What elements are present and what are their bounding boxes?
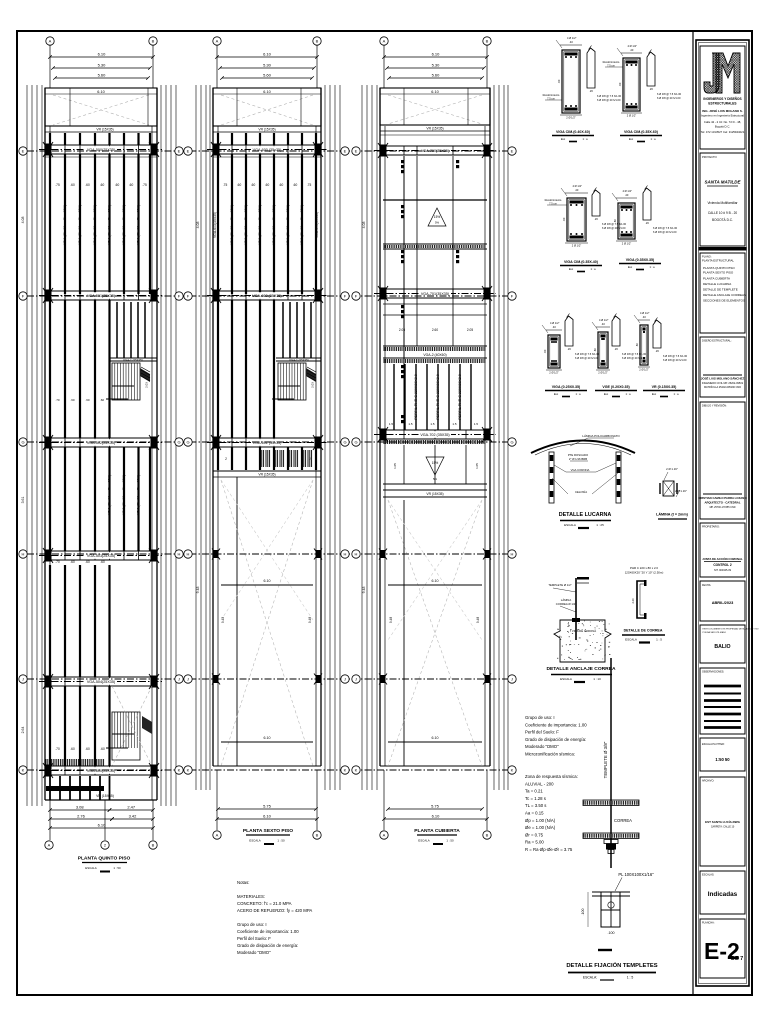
svg-text:G: G (510, 440, 513, 445)
svg-text:.75: .75 (55, 183, 60, 187)
svg-text:.60: .60 (85, 398, 90, 402)
svg-text:1 : 50: 1 : 50 (446, 839, 454, 843)
svg-text:.26: .26 (589, 89, 593, 93)
svg-text:PLANTA SEXTO PISO: PLANTA SEXTO PISO (243, 828, 293, 834)
svg-text:.40: .40 (569, 40, 573, 44)
svg-text:6.10: 6.10 (263, 90, 270, 94)
svg-text:1 : 5: 1 : 5 (656, 638, 662, 642)
svg-text:VR (15X35): VR (15X35) (426, 492, 443, 496)
svg-text:1.5: 1.5 (430, 422, 435, 426)
svg-text:SANTA MATILDE: SANTA MATILDE (705, 180, 742, 185)
svg-text:.60: .60 (237, 183, 242, 187)
svg-text:2 Ø 1.16": 2 Ø 1.16" (666, 467, 678, 471)
svg-text:.60: .60 (100, 398, 105, 402)
svg-text:Recubrimiento: Recubrimiento (543, 93, 560, 97)
svg-text:6 Ø 3/8 @ 20 h/1.00: 6 Ø 3/8 @ 20 h/1.00 (663, 358, 687, 362)
svg-text:Moderado "DMO": Moderado "DMO" (525, 744, 559, 749)
svg-text:6.10: 6.10 (263, 52, 272, 57)
svg-text:9.48: 9.48 (221, 617, 225, 623)
svg-text:.100: .100 (608, 931, 615, 935)
svg-text:VGA-503(25X35): VGA-503(25X35) (87, 554, 115, 558)
svg-text:.75: .75 (223, 183, 228, 187)
svg-text:DETALLE DE TEMPLETE: DETALLE DE TEMPLETE (703, 288, 738, 292)
svg-text:Tel: 472 1313527 Cel: 3125944: Tel: 472 1313527 Cel: 3125944021 (701, 130, 745, 134)
svg-text:.60: .60 (129, 183, 134, 187)
svg-text:6 Ø 3/8 @ 20 h/1.00: 6 Ø 3/8 @ 20 h/1.00 (575, 356, 599, 360)
svg-text:6 Ø 3/8 @ 7.5 h/1.00: 6 Ø 3/8 @ 7.5 h/1.00 (663, 354, 688, 358)
svg-text:A: A (383, 833, 386, 838)
svg-text:SECCIONES DE ELEMENTOS: SECCIONES DE ELEMENTOS (703, 299, 745, 303)
svg-text:5.30: 5.30 (432, 63, 441, 68)
svg-text:.40: .40 (630, 48, 634, 52)
svg-text:.60: .60 (618, 82, 622, 86)
svg-text:A: A (49, 39, 52, 44)
svg-text:Notas:: Notas: (237, 880, 249, 885)
svg-text:.70: .70 (55, 560, 60, 564)
svg-text:2: 2 (309, 457, 311, 461)
svg-text:2.76: 2.76 (77, 814, 86, 819)
svg-text:PLANTA CUBIERTA: PLANTA CUBIERTA (414, 828, 460, 834)
svg-text:H: H (355, 552, 358, 557)
svg-text:CELOSÍA: CELOSÍA (575, 490, 587, 494)
svg-text:.60: .60 (557, 79, 561, 83)
svg-text:4.08: 4.08 (21, 217, 25, 224)
svg-text:.60: .60 (70, 398, 75, 402)
svg-text:5.60: 5.60 (432, 73, 441, 78)
svg-text:2.03: 2.03 (145, 382, 149, 388)
svg-text:1.5: 1.5 (452, 422, 457, 426)
svg-text:ESCALA:: ESCALA: (583, 976, 597, 980)
svg-text:A: A (383, 39, 386, 44)
svg-text:J: J (178, 677, 180, 682)
svg-text:Ta = 0.21: Ta = 0.21 (525, 789, 543, 794)
svg-text:PLANTA QUINTO PISO: PLANTA QUINTO PISO (78, 856, 131, 862)
svg-text:DETALLE LUCARNA: DETALLE LUCARNA (703, 282, 731, 286)
svg-text:120X60X20 "20 Y 10" (2.50m): 120X60X20 "20 Y 10" (2.50m) (625, 571, 664, 575)
svg-text:.60: .60 (85, 183, 90, 187)
svg-text:1.5: 1.5 (389, 422, 394, 426)
svg-text:15%: 15% (432, 461, 439, 465)
svg-text:1 : 25: 1 : 25 (596, 523, 604, 527)
svg-text:Esc: Esc (569, 267, 574, 271)
svg-text:4.08: 4.08 (196, 222, 200, 229)
svg-text:5.30: 5.30 (98, 63, 107, 68)
svg-text:.60: .60 (613, 219, 617, 223)
svg-text:1 : a: 1 : a (649, 265, 655, 269)
svg-text:.40: .40 (625, 193, 629, 197)
svg-text:Recubrimiento: Recubrimiento (545, 198, 562, 202)
svg-text:PHR C 220 x 80 x 2.0: PHR C 220 x 80 x 2.0 (630, 566, 658, 570)
svg-text:6 Ø 3/8 @ 20 h/1.00: 6 Ø 3/8 @ 20 h/1.00 (653, 230, 677, 234)
svg-text:VGA-603(35X35): VGA-603(35X35) (213, 212, 217, 238)
svg-text:6.10: 6.10 (264, 736, 271, 740)
svg-text:6.10: 6.10 (432, 814, 441, 819)
svg-text:A: A (216, 39, 219, 44)
svg-text:Indicadas: Indicadas (708, 891, 738, 898)
svg-text:VT-1 (Ch 60 en Rec 35X): VT-1 (Ch 60 en Rec 35X) (93, 205, 97, 245)
svg-text:VT-2 (Ch 60 en Rec 35X): VT-2 (Ch 60 en Rec 35X) (122, 475, 126, 515)
svg-text:B: B (486, 833, 489, 838)
svg-text:CALLE 10 # 9 B - 20: CALLE 10 # 9 B - 20 (708, 211, 737, 215)
svg-text:JUNTA DE ACCIÓN COMUNAL: JUNTA DE ACCIÓN COMUNAL (702, 556, 743, 561)
svg-text:2 Ø 1/2": 2 Ø 1/2" (549, 371, 559, 375)
svg-text:VR (15X35): VR (15X35) (426, 127, 443, 131)
svg-text:VGA-702 (35X35): VGA-702 (35X35) (420, 433, 449, 437)
svg-text:4 Ø 1/2": 4 Ø 1/2" (640, 311, 650, 315)
svg-text:VGA-504(25X35): VGA-504(25X35) (87, 680, 115, 684)
svg-text:Recubrimiento: Recubrimiento (603, 60, 620, 64)
svg-text:.40: .40 (552, 325, 556, 329)
svg-text:VIGA (0.35X0.35): VIGA (0.35X0.35) (626, 258, 655, 262)
svg-text:.60: .60 (70, 747, 75, 751)
svg-text:6.10: 6.10 (98, 52, 107, 57)
svg-text:2.64: 2.64 (21, 727, 25, 734)
svg-text:H: H (344, 552, 347, 557)
svg-text:E: E (355, 149, 358, 154)
svg-text:2.03: 2.03 (311, 382, 315, 388)
svg-text:ALUVIAL - 200: ALUVIAL - 200 (525, 781, 554, 786)
svg-text:LÁMINA POLICARBONATO: LÁMINA POLICARBONATO (582, 434, 620, 438)
svg-text:DETALLE FIJACIÓN TEMPLETES: DETALLE FIJACIÓN TEMPLETES (566, 961, 657, 969)
svg-text:VR (15X35): VR (15X35) (96, 794, 114, 798)
svg-text:INGENIEROS Y DISEÑOS: INGENIEROS Y DISEÑOS (703, 96, 741, 101)
svg-text:1.5: 1.5 (474, 422, 479, 426)
svg-text:G: G (186, 440, 189, 445)
svg-text:Microzonificación sísmica:: Microzonificación sísmica: (525, 752, 575, 757)
svg-text:.100: .100 (581, 909, 585, 916)
svg-text:3.08: 3.08 (76, 805, 85, 810)
svg-text:Esc: Esc (652, 392, 657, 396)
svg-text:Ør = 0.75: Ør = 0.75 (525, 832, 544, 837)
svg-text:K: K (187, 768, 190, 773)
svg-text:5.60: 5.60 (98, 73, 107, 78)
svg-text:.60: .60 (70, 560, 75, 564)
svg-text:Øp = 1.00 (N/A): Øp = 1.00 (N/A) (525, 818, 556, 823)
svg-text:K: K (344, 768, 347, 773)
svg-text:1 : a: 1 : a (575, 392, 581, 396)
svg-text:.26: .26 (567, 347, 571, 351)
svg-text:VIGA DE CORONA: VIGA DE CORONA (572, 629, 596, 633)
svg-text:6 Ø 3/8 @ 20 h/1.00: 6 Ø 3/8 @ 20 h/1.00 (602, 226, 626, 230)
svg-text:VT-3 (Ch 60 en Rec 35X): VT-3 (Ch 60 en Rec 35X) (300, 205, 304, 245)
svg-text:E: E (344, 149, 347, 154)
svg-text:9.48: 9.48 (362, 587, 366, 594)
svg-text:TEMPLETE Ø 3/8": TEMPLETE Ø 3/8" (603, 741, 608, 778)
svg-text:.75: .75 (142, 183, 147, 187)
svg-text:VT-1 (Ch 60 en Rec 35X): VT-1 (Ch 60 en Rec 35X) (78, 205, 82, 245)
svg-text:Perfil del Suelo: F: Perfil del Suelo: F (525, 730, 559, 735)
svg-text:.60: .60 (593, 348, 597, 352)
svg-text:MP. 25700-171555 CND: MP. 25700-171555 CND (710, 506, 736, 509)
svg-text:VR (15X35): VR (15X35) (258, 128, 275, 132)
svg-text:VT-3 (Ch 60 en Rec 35X): VT-3 (Ch 60 en Rec 35X) (258, 205, 262, 245)
svg-text:G: G (354, 440, 357, 445)
svg-text:4 Ø 1/2": 4 Ø 1/2" (623, 189, 633, 193)
svg-text:ESCALAS:: ESCALAS: (702, 874, 715, 877)
svg-text:Esc: Esc (629, 137, 634, 141)
svg-text:J: J (187, 677, 189, 682)
svg-text:5.30: 5.30 (263, 63, 272, 68)
svg-text:VGE (0.20X0.35): VGE (0.20X0.35) (602, 385, 630, 389)
svg-text:H: H (22, 552, 25, 557)
svg-text:K: K (178, 768, 181, 773)
svg-text:PLANTA QUINTO PISO: PLANTA QUINTO PISO (703, 266, 735, 270)
svg-text:.60: .60 (635, 343, 639, 347)
svg-text:1 : a: 1 : a (625, 392, 631, 396)
svg-text:Grado de disipación de energía: Grado de disipación de energía: (237, 943, 298, 948)
svg-text:Esc: Esc (628, 265, 633, 269)
svg-text:VT-3 (Ch 60 en Rec 35X): VT-3 (Ch 60 en Rec 35X) (244, 205, 248, 245)
svg-text:ING. JOSÉ LUIS MOLANO S.: ING. JOSÉ LUIS MOLANO S. (702, 108, 743, 113)
svg-text:PERFIL PHR C 220X80X2.0: PERFIL PHR C 220X80X2.0 (414, 374, 418, 419)
svg-text:9.48: 9.48 (476, 617, 480, 623)
svg-text:4 Ø 1/2": 4 Ø 1/2" (599, 318, 609, 322)
svg-text:.26: .26 (655, 349, 659, 353)
svg-text:Grupo de uso: I: Grupo de uso: I (237, 922, 267, 927)
svg-text:6 Ø 3/8 @ 20 h/1.00: 6 Ø 3/8 @ 20 h/1.00 (622, 356, 646, 360)
svg-text:OBSERVACIONES:: OBSERVACIONES: (702, 671, 724, 674)
svg-text:VIGA CIM.(0.40X.60): VIGA CIM.(0.40X.60) (556, 130, 591, 134)
svg-text:.60: .60 (100, 183, 105, 187)
svg-text:5.75: 5.75 (263, 804, 272, 809)
svg-text:6.10: 6.10 (264, 579, 271, 583)
svg-text:NIT. 900345-09: NIT. 900345-09 (714, 569, 732, 572)
svg-text:VGA-603(35X35): VGA-603(35X35) (315, 212, 319, 238)
svg-text:1 : a: 1 : a (582, 137, 588, 141)
svg-text:JOSÉ LUIS MOLANO SÁNCHEZ: JOSÉ LUIS MOLANO SÁNCHEZ (701, 376, 745, 381)
svg-text:6.10: 6.10 (97, 90, 104, 94)
svg-text:4 Ø 1/2": 4 Ø 1/2" (550, 321, 560, 325)
svg-text:G: G (177, 440, 180, 445)
svg-text:PL 100X100X1/16": PL 100X100X1/16" (618, 872, 654, 877)
svg-text:Aa = 0.15: Aa = 0.15 (525, 811, 544, 816)
svg-text:H: H (178, 552, 181, 557)
svg-text:4 Ø 1/2": 4 Ø 1/2" (628, 44, 638, 48)
svg-text:Bogotá D.C.: Bogotá D.C. (715, 125, 730, 129)
svg-text:3.42: 3.42 (129, 814, 138, 819)
svg-text:Vivienda Multifamiliar: Vivienda Multifamiliar (707, 201, 738, 205)
svg-text:CONTROL 2: CONTROL 2 (713, 563, 732, 567)
svg-text:6.10: 6.10 (432, 736, 439, 740)
svg-text:VR (15X35): VR (15X35) (258, 473, 275, 477)
svg-text:1.05: 1.05 (393, 463, 397, 469)
svg-text:2.20: 2.20 (631, 598, 635, 604)
svg-text:.60: .60 (562, 217, 566, 221)
svg-text:4 Ø 1/2": 4 Ø 1/2" (573, 184, 583, 188)
svg-text:ESCALA: ESCALA (85, 866, 96, 870)
svg-text:.60: .60 (543, 349, 547, 353)
svg-text:VT-1 (Ch 60 en Rec 35X): VT-1 (Ch 60 en Rec 35X) (137, 205, 141, 245)
svg-text:TEMPLETE Ø 1/2": TEMPLETE Ø 1/2" (548, 583, 571, 587)
svg-text:2.47: 2.47 (127, 805, 136, 810)
svg-text:2 Ø 1/2": 2 Ø 1/2" (598, 371, 608, 375)
svg-text:1 : 50: 1 : 50 (277, 839, 285, 843)
svg-text:1 : 50: 1 : 50 (113, 866, 121, 870)
svg-text:6.10: 6.10 (432, 52, 441, 57)
svg-text:9.48: 9.48 (308, 617, 312, 623)
svg-text:ARQUITECTO - CATEDRAL: ARQUITECTO - CATEDRAL (704, 501, 740, 505)
svg-text:PROYECTO:: PROYECTO: (702, 155, 718, 159)
svg-text:2 Ø 1/2": 2 Ø 1/2" (572, 244, 582, 248)
svg-text:1 : a: 1 : a (650, 137, 656, 141)
svg-text:.60: .60 (85, 747, 90, 751)
svg-text:Esc: Esc (554, 392, 559, 396)
svg-text:VGA-1 (25X35): VGA-1 (25X35) (123, 358, 143, 362)
svg-text:6.10: 6.10 (263, 814, 272, 819)
svg-text:.40: .40 (601, 322, 605, 326)
svg-text:VT-1 (Ch 60 en Rec 35X): VT-1 (Ch 60 en Rec 35X) (122, 205, 126, 245)
svg-text:3.61: 3.61 (21, 497, 25, 504)
svg-text:B: B (316, 833, 319, 838)
svg-text:VGA-2 (40X60): VGA-2 (40X60) (423, 353, 446, 357)
svg-text:Ingeniero en Ingeniería Estruc: Ingeniero en Ingeniería Estructural (701, 114, 744, 118)
svg-text:6 Ø 3/8 @ 20 h/1.00: 6 Ø 3/8 @ 20 h/1.00 (657, 96, 681, 100)
svg-text:CRISTIAN CAMILO PARRA LOZANO: CRISTIAN CAMILO PARRA LOZANO (698, 496, 747, 500)
svg-text:INGENIERO CIVIL MP. 25202-0951: INGENIERO CIVIL MP. 25202-09519 (702, 382, 744, 385)
svg-text:VT-1 (Ch 60 en Rec 35X): VT-1 (Ch 60 en Rec 35X) (63, 205, 67, 245)
svg-text:4 Ø 1/2": 4 Ø 1/2" (567, 36, 577, 40)
svg-text:Ra = 5.00: Ra = 5.00 (525, 840, 544, 845)
svg-text:Esc: Esc (604, 392, 609, 396)
svg-text:Grupo de uso: I: Grupo de uso: I (525, 715, 555, 720)
svg-text:6 Ø 3/8 @ 7.5 h/1.00: 6 Ø 3/8 @ 7.5 h/1.00 (597, 94, 622, 98)
svg-text:2.60: 2.60 (432, 328, 438, 332)
svg-text:ACERO DE REFUERZO: fy = 420 MP: ACERO DE REFUERZO: fy = 420 MPA (237, 908, 312, 913)
svg-text:EST SANTA LUCÍA.DWG: EST SANTA LUCÍA.DWG (705, 819, 740, 824)
svg-text:VGA-701(35X35): VGA-701(35X35) (421, 292, 449, 296)
svg-text:G: G (21, 440, 24, 445)
svg-text:B: B (316, 39, 319, 44)
svg-text:.70: .70 (55, 747, 60, 751)
svg-text:1 : 10: 1 : 10 (593, 677, 601, 681)
svg-text:J: J (344, 677, 346, 682)
svg-text:PLANTA CUBIERTA: PLANTA CUBIERTA (703, 277, 730, 281)
svg-text:G: G (343, 440, 346, 445)
svg-text:ABRIL/2023: ABRIL/2023 (712, 600, 734, 605)
svg-text:J: J (22, 677, 24, 682)
svg-text:1 : a: 1 : a (590, 267, 596, 271)
svg-text:MATRÍCULA 25202-095190 CND: MATRÍCULA 25202-095190 CND (704, 386, 741, 389)
svg-text:ESTE DOCUMENTO ES PROPIEDAD DE: ESTE DOCUMENTO ES PROPIEDAD DE SU AUTOR … (703, 628, 759, 631)
svg-text:2" Ø 1/16 BRB: 2" Ø 1/16 BRB (569, 457, 587, 461)
svg-text:6 Ø 3/8 @ 20 h/1.00: 6 Ø 3/8 @ 20 h/1.00 (597, 98, 621, 102)
svg-text:VGA CORONA: VGA CORONA (571, 468, 590, 472)
svg-text:PERFIL PHR C 220X80X2.0: PERFIL PHR C 220X80X2.0 (458, 374, 462, 419)
svg-text:DIBUJO Y REVISIÓN:: DIBUJO Y REVISIÓN: (702, 405, 727, 408)
svg-text:.60: .60 (265, 183, 270, 187)
svg-text:Calle 42 - 2 Inf. No. 72 D - 4: Calle 42 - 2 Inf. No. 72 D - 48, (704, 120, 741, 124)
svg-text:VT-3 (Ch 60 en Rec 35X): VT-3 (Ch 60 en Rec 35X) (272, 205, 276, 245)
svg-text:.75: .75 (307, 183, 312, 187)
svg-text:Perfil del Suelo: F: Perfil del Suelo: F (237, 936, 271, 941)
svg-text:1:50 50: 1:50 50 (715, 757, 730, 762)
svg-text:.60: .60 (279, 183, 284, 187)
svg-text:VR (0.15X0.35): VR (0.15X0.35) (652, 385, 678, 389)
svg-text:VT-3 (Ch 60 en Rec 35X): VT-3 (Ch 60 en Rec 35X) (230, 205, 234, 245)
svg-text:CONCRETO: f'c = 21.0 MPA: CONCRETO: f'c = 21.0 MPA (237, 901, 292, 906)
svg-text:VIGA (0.25X0.35): VIGA (0.25X0.35) (552, 385, 581, 389)
svg-text:FECHA:: FECHA: (702, 584, 711, 587)
svg-text:PLANTA ESTRUCTURAL: PLANTA ESTRUCTURAL (702, 259, 734, 263)
svg-text:Moderado "DMO": Moderado "DMO" (237, 950, 271, 955)
svg-text:VIGA CIM.(0.35X.60): VIGA CIM.(0.35X.60) (624, 130, 659, 134)
svg-text:DE 7: DE 7 (731, 956, 743, 962)
svg-text:LÁMINA (t = 2mm): LÁMINA (t = 2mm) (656, 512, 688, 517)
svg-text:CORREA Ø 1/2": CORREA Ø 1/2" (556, 602, 576, 606)
svg-text:MATERIALES:: MATERIALES: (237, 894, 265, 899)
svg-text:H: H (511, 552, 514, 557)
svg-text:2: 2 (225, 457, 227, 461)
svg-text:9.48: 9.48 (389, 617, 393, 623)
svg-text:DISEÑO ESTRUCTURAL:: DISEÑO ESTRUCTURAL: (702, 340, 732, 343)
svg-text:BOGOTÁ D.C.: BOGOTÁ D.C. (712, 218, 733, 222)
svg-text:B: B (152, 39, 155, 44)
svg-text:.60: .60 (100, 560, 105, 564)
svg-text:VT-3 (Ch 60 en Rec 35X): VT-3 (Ch 60 en Rec 35X) (286, 205, 290, 245)
svg-text:2.05: 2.05 (399, 328, 405, 332)
svg-text:B: B (486, 39, 489, 44)
svg-text:Grado de disipación de energía: Grado de disipación de energía: (525, 737, 586, 742)
svg-text:E: E (22, 149, 25, 154)
svg-text:Øe = 1.00 (N/A): Øe = 1.00 (N/A) (525, 825, 556, 830)
svg-text:TL = 3.50 s: TL = 3.50 s (525, 803, 546, 808)
svg-text:DETALLE LUCARNA: DETALLE LUCARNA (559, 512, 612, 518)
svg-text:Coeficiente de importancia: 1.: Coeficiente de importancia: 1.00 (237, 929, 299, 934)
svg-text:2 Ø 1.16": 2 Ø 1.16" (675, 489, 687, 493)
svg-text:.60: .60 (100, 747, 105, 751)
svg-text:2 Ø 1/2": 2 Ø 1/2" (566, 116, 576, 120)
svg-text:.60: .60 (293, 183, 298, 187)
svg-text:.40: .40 (575, 188, 579, 192)
svg-text:PERFIL PHR C 220X80X2.0: PERFIL PHR C 220X80X2.0 (436, 374, 440, 419)
svg-text:ESCALA: ESCALA (249, 839, 260, 843)
svg-text:ARCHIVO:: ARCHIVO: (702, 780, 714, 783)
svg-text:.60: .60 (251, 183, 256, 187)
svg-text:5.75: 5.75 (431, 804, 440, 809)
svg-text:6 Ø 3/8 @ 7.5 h/1.00: 6 Ø 3/8 @ 7.5 h/1.00 (622, 352, 647, 356)
svg-text:.60: .60 (85, 560, 90, 564)
svg-text:Esc: Esc (561, 137, 566, 141)
svg-text:2.05: 2.05 (467, 328, 473, 332)
svg-text:VT-2 (Ch 60 en Rec 35X): VT-2 (Ch 60 en Rec 35X) (137, 475, 141, 515)
svg-text:PLANTA SEXTO PISO: PLANTA SEXTO PISO (703, 271, 734, 275)
svg-text:K: K (355, 768, 358, 773)
svg-text:.26: .26 (649, 87, 653, 91)
svg-text:5%: 5% (433, 477, 438, 481)
svg-text:6 Ø 3/8 @ 7.5 h/1.00: 6 Ø 3/8 @ 7.5 h/1.00 (657, 92, 682, 96)
svg-text:1.05: 1.05 (475, 463, 479, 469)
svg-text:Coeficiente de importancia: 1.: Coeficiente de importancia: 1.00 (525, 722, 587, 727)
svg-text:.26: .26 (614, 347, 618, 351)
svg-text:BALIO: BALIO (714, 644, 730, 650)
svg-text:R = Ra·Øp·Øe·Ør = 3.75: R = Ra·Øp·Øe·Ør = 3.75 (525, 847, 573, 852)
svg-text:VT-1 (Ch 60 en Rec 35X): VT-1 (Ch 60 en Rec 35X) (108, 205, 112, 245)
svg-text:.60: .60 (70, 183, 75, 187)
svg-text:6.10: 6.10 (431, 90, 438, 94)
svg-text:2 Ø 1/2": 2 Ø 1/2" (627, 114, 637, 118)
svg-text:.26: .26 (645, 221, 649, 225)
svg-text:1.5: 1.5 (408, 422, 413, 426)
svg-text:E: E (178, 149, 181, 154)
svg-text:Zona de respuesta sísmica:: Zona de respuesta sísmica: (525, 774, 578, 779)
svg-text:ESTRUCTURALES: ESTRUCTURALES (708, 102, 736, 106)
svg-text:ESCALA: ESCALA (560, 677, 572, 681)
svg-text:.60: .60 (115, 183, 120, 187)
svg-text:CARPETA: CALLE 10: CARPETA: CALLE 10 (711, 826, 735, 829)
svg-text:CORREA: CORREA (614, 818, 632, 823)
svg-text:VR (15X35): VR (15X35) (96, 128, 113, 132)
svg-text:15%: 15% (434, 215, 441, 219)
